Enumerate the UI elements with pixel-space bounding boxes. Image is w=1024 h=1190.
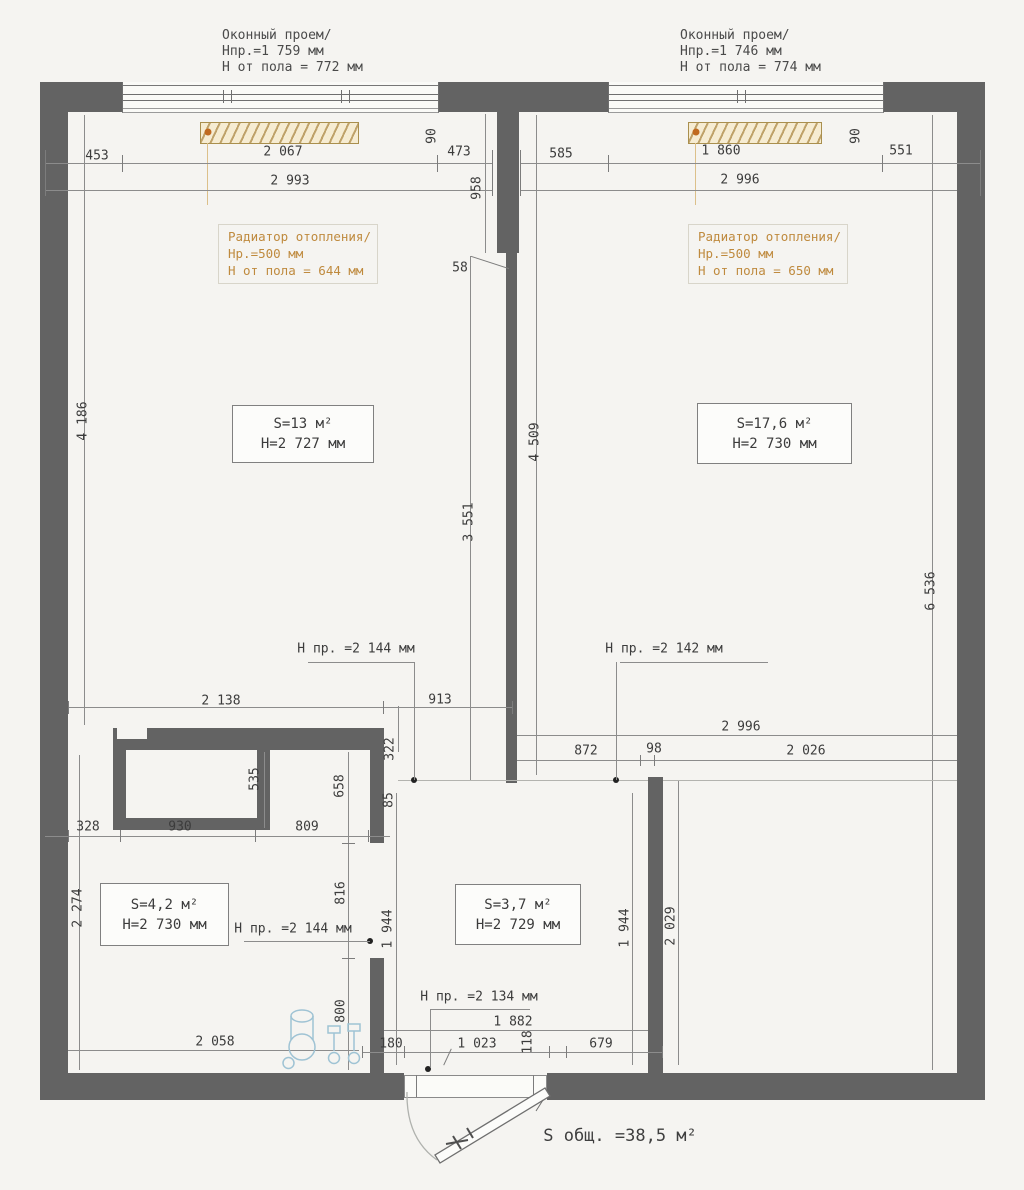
window-glazing — [123, 94, 438, 101]
radiator-left — [200, 122, 359, 144]
opening-height-label: H пр. =2 134 мм — [420, 990, 537, 1005]
room-height: H=2 730 мм — [732, 434, 816, 454]
window-glazing — [609, 94, 883, 101]
wall-right — [957, 82, 985, 1100]
annotation-line: Оконный проем/ — [680, 28, 821, 44]
dim-text: 958 — [470, 176, 485, 199]
dim-tick — [654, 755, 655, 766]
dim-line — [264, 752, 265, 828]
dim-text: 328 — [76, 820, 99, 835]
dim-tick — [566, 1046, 567, 1058]
radiator-right-annotation: Радиатор отопления/ Hр.=500 мм H от пола… — [688, 224, 841, 279]
annotation-line: Радиатор отопления/ — [228, 228, 371, 245]
dim-tick — [640, 755, 641, 766]
room-height: H=2 727 мм — [261, 434, 345, 454]
radiator-left-annotation: Радиатор отопления/ Hр.=500 мм H от пола… — [218, 224, 371, 279]
room-label-living: S=13 м² H=2 727 мм — [232, 405, 374, 463]
dim-text: 2 058 — [195, 1035, 234, 1050]
dim-tick — [120, 830, 121, 842]
annotation-line: Hр.=500 мм — [698, 245, 841, 262]
radiator-left-leader — [207, 143, 208, 205]
dim-text: 1 944 — [381, 909, 396, 948]
dim-tick — [68, 830, 69, 842]
bracket-line — [620, 662, 768, 663]
bracket-line — [616, 662, 617, 780]
valve-icon — [328, 1026, 340, 1033]
wall-hall-right — [648, 777, 663, 1073]
dim-text: 1 882 — [493, 1015, 532, 1030]
dim-tick — [68, 701, 69, 714]
dim-tick — [437, 155, 438, 172]
room-label-bath: S=4,2 м² H=2 730 мм — [100, 883, 229, 946]
dim-line — [396, 793, 397, 1065]
dim-text: 4 186 — [76, 401, 91, 440]
dim-text: 98 — [646, 742, 662, 757]
wall-bottom-right — [547, 1073, 985, 1100]
room-height: H=2 729 мм — [476, 915, 560, 935]
dim-tick — [383, 701, 384, 714]
dim-tick — [492, 150, 493, 196]
window-left — [122, 82, 439, 113]
dim-text: 658 — [333, 774, 348, 797]
dim-tick — [549, 1046, 550, 1058]
pipe-icon — [329, 1053, 340, 1064]
dim-tick — [520, 150, 521, 196]
door-swing-arc — [407, 1092, 437, 1160]
extension-line — [663, 780, 957, 781]
radiator-left-point — [205, 129, 212, 136]
dim-tick — [662, 1046, 663, 1058]
window-sill-line — [609, 108, 883, 109]
opening-line — [398, 780, 648, 781]
radiator-right — [688, 122, 822, 144]
dim-line — [45, 836, 390, 837]
entrance-door — [393, 1086, 563, 1190]
leader-line — [471, 256, 509, 269]
annotation-line: Радиатор отопления/ — [698, 228, 841, 245]
dim-text: 913 — [428, 693, 451, 708]
annotation-line: H от пола = 650 мм — [698, 262, 841, 279]
wall-bottom-left — [40, 1073, 404, 1100]
dim-text: 322 — [383, 737, 398, 760]
dim-tick — [122, 155, 123, 172]
dim-tick — [882, 155, 883, 172]
window-right-annotation: Оконный проем/ Hпр.=1 746 мм H от пола =… — [680, 28, 821, 76]
annotation-line: Hпр.=1 746 мм — [680, 44, 821, 60]
dim-text: 2 067 — [263, 145, 302, 160]
dim-text: 2 274 — [71, 888, 86, 927]
total-area-label: S общ. =38,5 м² — [543, 1126, 697, 1146]
annotation-line: H от пола = 644 мм — [228, 262, 371, 279]
window-mullion — [223, 90, 224, 103]
room-height: H=2 730 мм — [122, 915, 206, 935]
window-left-annotation: Оконный проем/ Hпр.=1 759 мм H от пола =… — [222, 28, 363, 76]
annotation-line: Hр.=500 мм — [228, 245, 371, 262]
radiator-right-leader — [695, 143, 696, 205]
dim-tick — [404, 1046, 405, 1058]
dim-text: 58 — [452, 261, 468, 276]
dim-line — [520, 190, 957, 191]
bracket-line — [308, 662, 415, 663]
room-label-hall: S=3,7 м² H=2 729 мм — [455, 884, 581, 945]
floor-plan: Оконный проем/ Hпр.=1 759 мм H от пола =… — [0, 0, 1024, 1190]
window-frame-line — [609, 85, 883, 86]
wall-center-thick — [497, 112, 519, 253]
boiler-base-icon — [289, 1034, 315, 1060]
dim-text: 3 551 — [462, 502, 477, 541]
room-label-bedroom: S=17,6 м² H=2 730 мм — [697, 403, 852, 464]
dim-line — [520, 163, 980, 164]
dim-text: 2 029 — [664, 906, 679, 945]
dim-text: 551 — [889, 144, 912, 159]
dim-text: 930 — [168, 820, 191, 835]
dim-line — [45, 163, 492, 164]
dim-text: 6 536 — [924, 571, 939, 610]
room-area: S=3,7 м² — [484, 895, 551, 915]
dim-tick — [342, 958, 355, 959]
dim-text: 90 — [425, 128, 440, 144]
annotation-line: H от пола = 772 мм — [222, 60, 363, 76]
dim-text: 809 — [295, 820, 318, 835]
dim-tick — [255, 830, 256, 842]
bracket-line — [414, 662, 415, 780]
dim-text: 2 026 — [786, 744, 825, 759]
pipe-icon — [283, 1058, 294, 1069]
dim-text: 90 — [849, 128, 864, 144]
dim-line — [517, 735, 957, 736]
dim-text: 453 — [85, 149, 108, 164]
dim-text: 1 944 — [618, 908, 633, 947]
bracket-line — [430, 1009, 431, 1067]
dim-text: 4 509 — [528, 422, 543, 461]
annotation-line: Hпр.=1 759 мм — [222, 44, 363, 60]
window-mullion — [745, 90, 746, 103]
pipe-icon — [349, 1053, 360, 1064]
dim-text: 679 — [589, 1037, 612, 1052]
dim-text: 473 — [447, 145, 470, 160]
wall-notch — [117, 728, 147, 739]
dim-text: 585 — [549, 147, 572, 162]
dim-text: 816 — [334, 881, 349, 904]
dim-text: 2 996 — [721, 720, 760, 735]
dim-text: 2 138 — [201, 694, 240, 709]
radiator-right-point — [693, 129, 700, 136]
dim-line — [517, 760, 957, 761]
room-area: S=17,6 м² — [737, 414, 813, 434]
opening-height-label: H пр. =2 144 мм — [297, 642, 414, 657]
room-area: S=4,2 м² — [131, 895, 198, 915]
dim-line — [45, 190, 492, 191]
dim-text: 1 023 — [457, 1037, 496, 1052]
window-mullion — [231, 90, 232, 103]
opening-height-label: H пр. =2 142 мм — [605, 642, 722, 657]
window-mullion — [341, 90, 342, 103]
dim-tick — [368, 830, 369, 842]
window-right — [608, 82, 884, 113]
room-area: S=13 м² — [273, 414, 332, 434]
plumbing-fixtures-icon — [282, 1006, 372, 1072]
dim-tick — [45, 150, 46, 196]
wall-top-middle — [437, 82, 608, 112]
bracket-line — [430, 1009, 530, 1010]
dim-line — [362, 1052, 663, 1053]
dim-tick — [980, 150, 981, 196]
dim-text: 118 — [521, 1030, 536, 1053]
wall-left — [40, 82, 68, 1100]
dim-text: 85 — [382, 792, 397, 808]
window-mullion — [349, 90, 350, 103]
wall-hall-top — [113, 728, 384, 750]
annotation-line: Оконный проем/ — [222, 28, 363, 44]
dim-text: 180 — [379, 1037, 402, 1052]
dim-tick — [342, 843, 355, 844]
boiler-top-icon — [291, 1010, 313, 1022]
dim-text: 872 — [574, 744, 597, 759]
annotation-line: H от пола = 774 мм — [680, 60, 821, 76]
dim-text: 535 — [248, 767, 263, 790]
valve-icon — [348, 1024, 360, 1031]
dim-text: 1 860 — [701, 144, 740, 159]
dim-line — [384, 1030, 648, 1031]
dim-tick — [608, 155, 609, 172]
bracket-line — [244, 941, 370, 942]
wall-bath-right-lower — [370, 958, 384, 1073]
dim-line — [485, 114, 486, 253]
dim-text: 2 996 — [720, 173, 759, 188]
opening-height-label: H пр. =2 144 мм — [234, 922, 351, 937]
window-frame-line — [123, 85, 438, 86]
door-leaf — [435, 1088, 550, 1163]
dim-text: 2 993 — [270, 174, 309, 189]
window-sill-line — [123, 108, 438, 109]
dim-tick — [512, 701, 513, 714]
dim-line — [398, 706, 399, 752]
window-mullion — [737, 90, 738, 103]
